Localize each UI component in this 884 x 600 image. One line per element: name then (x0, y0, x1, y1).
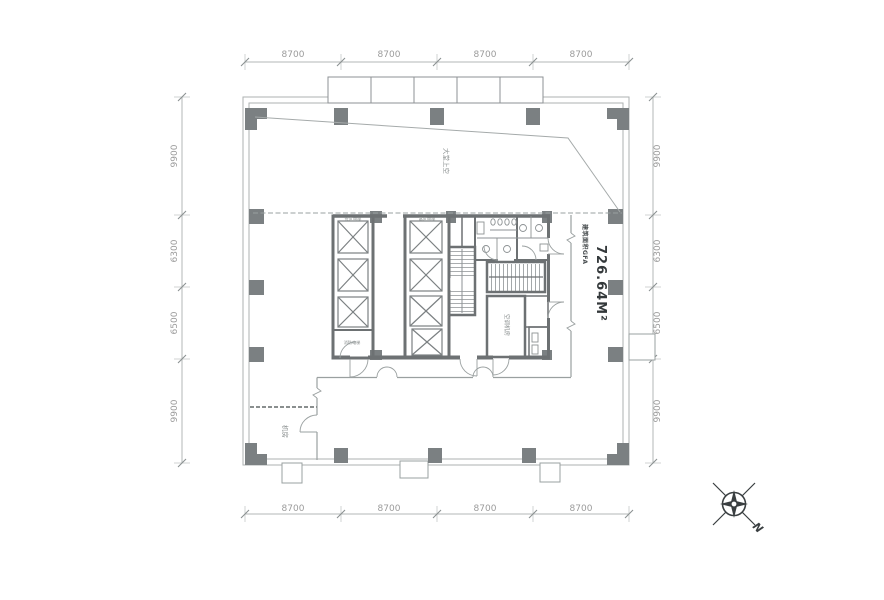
dim-bottom-2: 8700 (378, 504, 401, 514)
elevator-bank-high: 高区电梯 (405, 216, 449, 359)
dim-bottom-4: 8700 (570, 504, 593, 514)
dim-top-1: 8700 (282, 50, 305, 60)
dimension-bottom: 8700 8700 8700 8700 (241, 504, 633, 522)
toilet-fixtures (483, 225, 543, 253)
elevator-bank-low-label: 低区电梯 (345, 216, 362, 223)
dim-left-3: 6500 (170, 311, 180, 334)
dim-right-3: 6500 (653, 311, 663, 334)
dimension-right: 9900 6300 6500 9900 (645, 93, 663, 467)
dim-right-2: 6300 (653, 239, 663, 262)
service-core: 低区电梯 消防电梯 高区电梯 (333, 216, 564, 378)
ahu-room: 空调机房 (487, 296, 548, 357)
ahu-room-label: 空调机房 (503, 314, 511, 337)
elevator-bank-high-label: 高区电梯 (419, 216, 436, 223)
dim-bottom-3: 8700 (474, 504, 497, 514)
floor-plan-drawing: 8700 8700 8700 8700 8700 8700 8700 8700 (0, 0, 884, 600)
gfa-area-text: 建筑面积GFA 726.64M² (581, 224, 608, 322)
north-compass: N (713, 483, 766, 536)
machine-room: 机房 (250, 407, 317, 438)
dim-left-2: 6300 (170, 239, 180, 262)
dim-right-1: 9900 (653, 144, 663, 167)
dim-top-3: 8700 (474, 50, 497, 60)
dim-top-4: 8700 (570, 50, 593, 60)
floor-plan-canvas: 8700 8700 8700 8700 8700 8700 8700 8700 (0, 0, 884, 600)
dim-top-2: 8700 (378, 50, 401, 60)
dim-left-1: 9900 (170, 144, 180, 167)
dim-bottom-1: 8700 (282, 504, 305, 514)
area-caption: 建筑面积GFA (581, 224, 589, 264)
dim-right-4: 9900 (653, 399, 663, 422)
lobby-void: 大堂上空 (253, 117, 622, 213)
lobby-void-label: 大堂上空 (442, 148, 451, 175)
machine-room-label: 机房 (281, 425, 290, 438)
elevator-bank-low: 低区电梯 消防电梯 (333, 216, 373, 359)
area-value: 726.64M² (593, 245, 608, 322)
stair-b (487, 262, 545, 292)
dim-left-4: 9900 (170, 399, 180, 422)
top-canopy-panels (328, 77, 543, 103)
dimension-left: 9900 6300 6500 9900 (170, 93, 190, 467)
stair-a (449, 216, 475, 315)
dimension-top: 8700 8700 8700 8700 (241, 50, 633, 70)
urinal-fixtures (491, 219, 516, 225)
toilets (475, 216, 548, 260)
